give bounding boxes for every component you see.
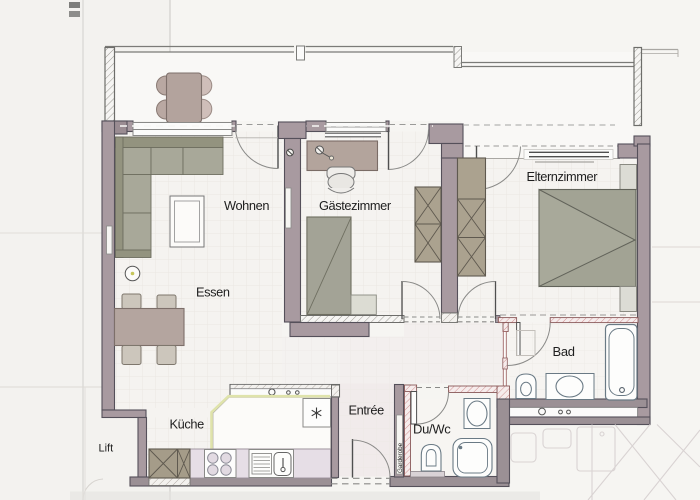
svg-text:Elternzimmer: Elternzimmer: [527, 169, 599, 184]
svg-text:Entrée: Entrée: [349, 403, 385, 418]
svg-text:Essen: Essen: [196, 285, 230, 300]
svg-text:Küche: Küche: [170, 417, 205, 432]
svg-text:Gästezimmer: Gästezimmer: [319, 198, 392, 213]
svg-text:Garderobe: Garderobe: [397, 442, 404, 473]
svg-text:Bad: Bad: [553, 344, 575, 359]
svg-text:Du/Wc: Du/Wc: [413, 422, 451, 437]
svg-text:Lift: Lift: [99, 443, 114, 455]
svg-text:Wohnen: Wohnen: [224, 198, 269, 213]
